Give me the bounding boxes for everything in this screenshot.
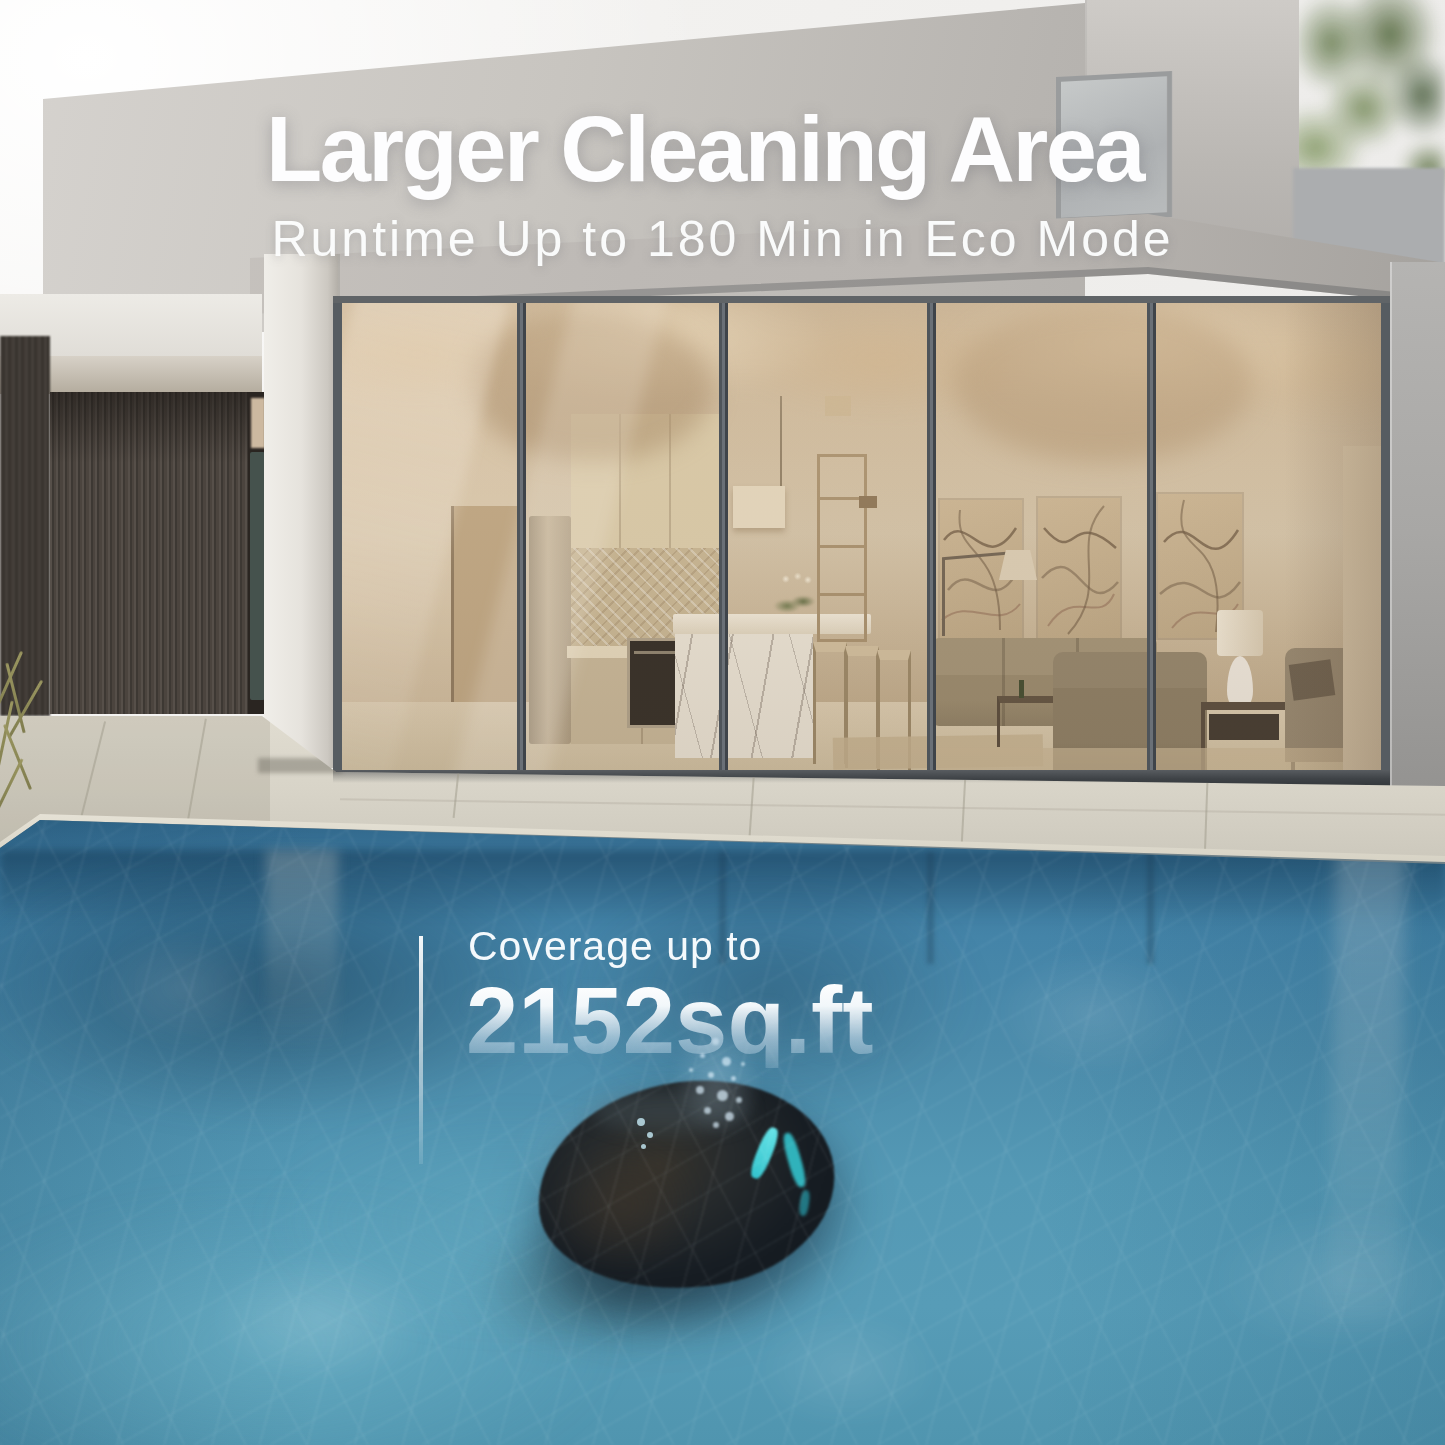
interior-window-glow (251, 398, 265, 448)
glass-mullion (517, 296, 526, 790)
coverage-value: 2152sq.ft (466, 974, 874, 1068)
headline: Larger Cleaning Area (0, 103, 1427, 195)
subheadline: Runtime Up to 180 Min in Eco Mode (0, 214, 1445, 264)
glass-mullion (927, 296, 936, 790)
refrigerator (250, 452, 265, 700)
glass-frame (333, 296, 1390, 303)
pillar (264, 254, 340, 768)
slat-wall (0, 336, 50, 716)
tile-joint (340, 798, 1445, 815)
glass-tint (333, 296, 1390, 790)
house-side-wall (1390, 262, 1445, 802)
glass-frame (1381, 296, 1390, 790)
glass-frame (333, 296, 342, 790)
coverage-label: Coverage up to (468, 926, 762, 967)
divider-line (419, 936, 423, 1164)
glass-mullion (1147, 296, 1156, 790)
glass-mullion (719, 296, 728, 790)
coverage-callout: Coverage up to 2152sq.ft (419, 920, 1019, 1180)
product-hero-image: Larger Cleaning Area Runtime Up to 180 M… (0, 0, 1445, 1445)
slat-wall (50, 392, 250, 714)
glass-wall (333, 296, 1390, 790)
